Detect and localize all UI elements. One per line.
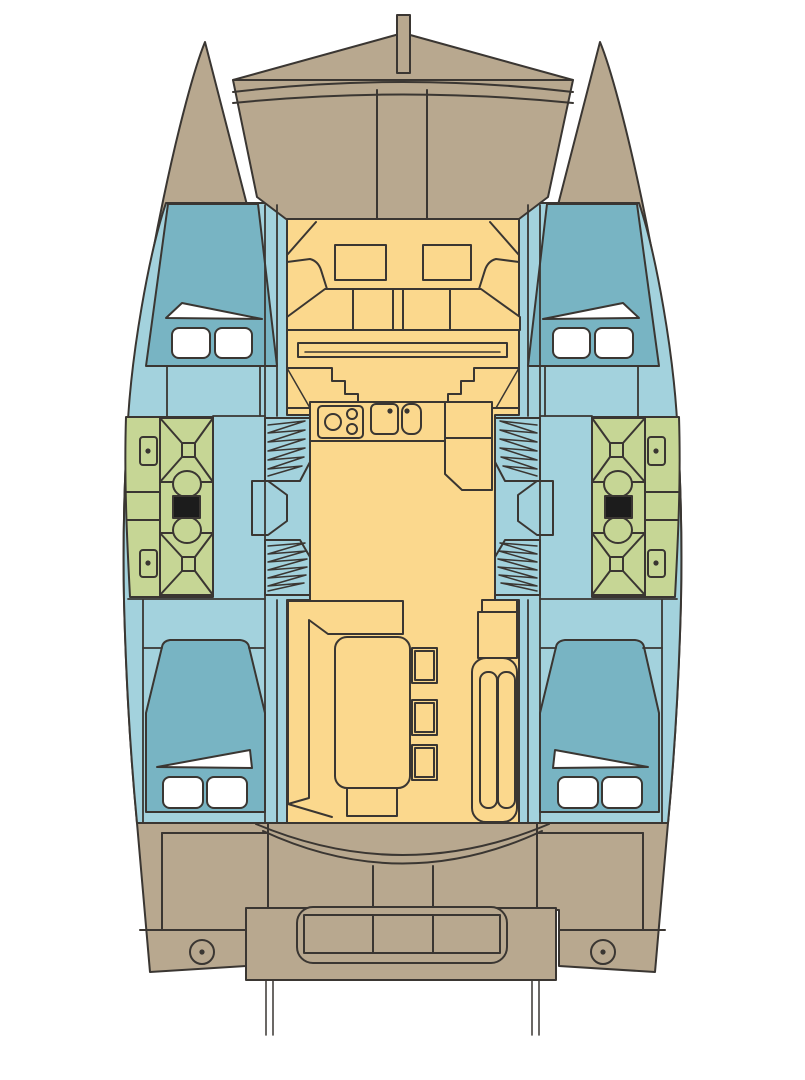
port-bathroom-sink-1 (140, 437, 157, 465)
starboard-bathroom-sink-2 (648, 550, 665, 577)
bowsprit (397, 15, 410, 73)
nav-counter (445, 402, 492, 438)
lounge-shelf (298, 343, 507, 357)
starboard-toilet (604, 471, 632, 543)
dinette-stool-1 (412, 648, 437, 683)
port-toilet (173, 471, 201, 543)
aft-cockpit-deck (268, 818, 537, 912)
port-forward-berth (146, 204, 277, 366)
pillow (207, 777, 247, 808)
starboard-bathroom (592, 417, 680, 597)
pillow (172, 328, 210, 358)
lounge-table-left (335, 245, 386, 280)
lounge-table-right (423, 245, 471, 280)
transom-bench (297, 907, 507, 963)
dinette-stool-2 (412, 700, 437, 735)
dinette-end-seat (347, 787, 397, 816)
starboard-bathroom-sink-1 (648, 437, 665, 465)
pillow (163, 777, 203, 808)
saloon (287, 219, 520, 823)
galley-sink-double (371, 404, 421, 434)
pillow (602, 777, 642, 808)
foredeck-panel (233, 68, 573, 219)
pillow (595, 328, 633, 358)
starboard-settee (472, 600, 517, 822)
pillow (215, 328, 252, 358)
port-bathroom-sink-2 (140, 550, 157, 577)
catamaran-floorplan (0, 0, 805, 1080)
pillow (553, 328, 590, 358)
port-bathroom (125, 417, 213, 597)
galley-stove (318, 406, 363, 438)
starboard-forward-berth (528, 204, 659, 366)
dinette-table (335, 637, 410, 788)
pillow (558, 777, 598, 808)
floorplan-stage (0, 0, 805, 1080)
dinette-stool-3 (412, 745, 437, 780)
